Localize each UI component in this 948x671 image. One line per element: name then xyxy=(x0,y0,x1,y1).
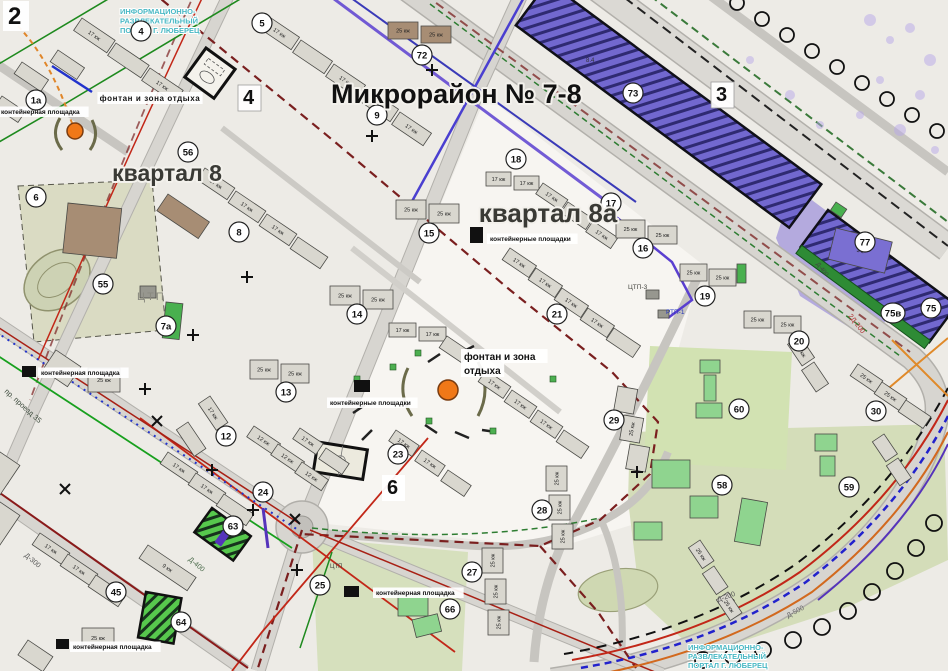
label-group: 8.4 xyxy=(586,58,595,64)
building-storeys-label: 25 кж xyxy=(429,33,443,39)
building: 17 кж xyxy=(419,327,446,341)
building: 17 кж xyxy=(389,323,416,337)
building: 25 кж xyxy=(363,290,393,309)
building-footprint xyxy=(652,460,690,488)
building-footprint xyxy=(646,290,659,299)
label-group: ЦТП xyxy=(330,564,342,570)
building-storeys-label: 25 кж xyxy=(656,233,670,239)
building-storeys-label: 25 кж xyxy=(716,276,730,282)
badge-number: 28 xyxy=(537,505,548,516)
building xyxy=(652,460,690,488)
watermark-text: ИНФОРМАЦИОННО- xyxy=(120,7,196,16)
building xyxy=(704,375,716,401)
badge-number: 5 xyxy=(259,18,265,29)
fountain-quarter-8a xyxy=(438,380,458,400)
badge-number: 9 xyxy=(374,110,379,121)
building: 25 кж xyxy=(680,264,707,281)
building xyxy=(63,203,122,258)
building-storeys-label: 25 кж xyxy=(91,636,105,642)
fountain-quarter-8 xyxy=(67,123,83,139)
building-storeys-label: 17 кж xyxy=(492,177,506,183)
label-group: ЦТП-3 xyxy=(628,284,648,291)
building-number-badge: 13 xyxy=(276,382,296,402)
building: 17 кж xyxy=(486,172,511,186)
watermark-text: РАЗВЛЕКАТЕЛЬНЫЙ xyxy=(120,17,198,26)
badge-number: 13 xyxy=(281,387,292,398)
building-storeys-label: 25 кж xyxy=(624,227,638,233)
badge-number: 59 xyxy=(844,482,855,493)
map-label: контейнерная площадка xyxy=(376,589,455,597)
building-storeys-label: 25 кж xyxy=(555,471,561,485)
label-group: ЦТП xyxy=(137,291,166,303)
district-number: 2 xyxy=(3,1,29,31)
building-storeys-label: 25 кж xyxy=(561,529,567,543)
building-number-badge: 75в xyxy=(881,303,905,323)
building xyxy=(815,434,837,451)
container-pad-icon xyxy=(56,639,69,649)
building-footprint xyxy=(820,456,835,476)
building-storeys-label: 25 кж xyxy=(404,208,418,214)
district-number: 6 xyxy=(382,475,405,501)
map-label: контейнерные площадки xyxy=(330,399,411,407)
badge-number: 4 xyxy=(138,26,144,37)
building-storeys-label: 25 кж xyxy=(751,318,765,324)
building-number-badge: 56 xyxy=(178,142,198,162)
building: 25 кж xyxy=(485,579,506,604)
building-number-badge: 8 xyxy=(229,222,249,242)
building-number-badge: 75 xyxy=(921,298,941,318)
building: 25 кж xyxy=(616,220,645,238)
badge-number: 75в xyxy=(885,308,902,319)
badge-number: 1а xyxy=(31,95,42,106)
badge-number: 45 xyxy=(111,587,122,598)
quarter-8-label: квартал 8 xyxy=(112,160,222,186)
badge-number: 12 xyxy=(221,431,232,442)
building-number-badge: 5 xyxy=(252,13,272,33)
badge-number: 55 xyxy=(98,279,109,290)
building-number-badge: 72 xyxy=(412,45,432,65)
building-number-badge: 45 xyxy=(106,582,126,602)
building: 25 кж xyxy=(774,316,801,333)
site-plan-map: 17 кж17 кж17 кж17 кж17 кж17 кж17 кж17 кж… xyxy=(0,0,948,671)
building-number-badge: 25 xyxy=(310,575,330,595)
building xyxy=(690,496,718,518)
map-label: фонтан и зона отдыха xyxy=(100,94,201,103)
building-number-badge: 28 xyxy=(532,500,552,520)
badge-number: 60 xyxy=(734,404,745,415)
badge-number: 29 xyxy=(609,415,620,426)
building: 25 кж xyxy=(281,364,309,383)
map-title: Микрорайон № 7-8 xyxy=(331,79,582,109)
badge-number: 56 xyxy=(183,147,194,158)
building-number-badge: 30 xyxy=(866,401,886,421)
building: 25 кж xyxy=(648,226,677,244)
building: 25 кж xyxy=(250,360,278,379)
badge-number: 18 xyxy=(511,154,522,165)
building: 25 кж xyxy=(421,26,451,43)
building-number-badge: 19 xyxy=(695,286,715,306)
building-storeys-label: 25 кж xyxy=(396,29,410,35)
building-number-badge: 63 xyxy=(223,516,243,536)
watermark-text: РАЗВЛЕКАТЕЛЬНЫЙ xyxy=(688,652,766,661)
badge-number: 58 xyxy=(717,480,728,491)
building-footprint xyxy=(700,360,720,373)
building-footprint xyxy=(815,434,837,451)
building-number-badge: 59 xyxy=(839,477,859,497)
district-number: 4 xyxy=(238,85,261,111)
building: 17 кж xyxy=(514,176,539,190)
building-storeys-label: 25 кж xyxy=(338,294,352,300)
building xyxy=(737,264,746,283)
building-storeys-label: 25 кж xyxy=(494,584,500,598)
building-storeys-label: 25 кж xyxy=(257,368,271,374)
building: 25 кж xyxy=(546,466,567,491)
district-number-text: 3 xyxy=(716,84,727,106)
building-number-badge: 64 xyxy=(171,612,191,632)
badge-number: 8 xyxy=(236,227,241,238)
building: 25 кж xyxy=(552,524,573,549)
building: 25 кж xyxy=(388,22,418,39)
badge-number: 21 xyxy=(552,309,563,320)
building-footprint xyxy=(634,522,662,540)
building xyxy=(700,360,720,373)
building-number-badge: 21 xyxy=(547,304,567,324)
building-number-badge: 14 xyxy=(347,304,367,324)
building-number-badge: 24 xyxy=(253,482,273,502)
building-number-badge: 23 xyxy=(388,444,408,464)
badge-number: 20 xyxy=(794,336,805,347)
building xyxy=(614,386,638,414)
badge-number: 16 xyxy=(638,243,649,254)
map-label: 8.4 xyxy=(586,58,595,64)
map-label: контейнерная площадка xyxy=(73,643,152,651)
building xyxy=(646,290,659,299)
map-label: контейнерные площадки xyxy=(490,235,571,243)
building-number-badge: 6 xyxy=(26,187,46,207)
building: 25 кж xyxy=(488,610,509,635)
building-number-badge: 77 xyxy=(855,232,875,252)
building-number-badge: 29 xyxy=(604,410,624,430)
building-number-badge: 73 xyxy=(623,83,643,103)
building-number-badge: 1а xyxy=(26,90,46,110)
badge-number: 14 xyxy=(352,309,363,320)
building-number-badge: 7а xyxy=(156,316,176,336)
container-pad-icon xyxy=(344,586,359,597)
map-label: ЦТП xyxy=(330,564,342,570)
building-footprint xyxy=(704,375,716,401)
building: 25 кж xyxy=(330,286,360,305)
badge-number: 15 xyxy=(424,228,435,239)
building-storeys-label: 25 кж xyxy=(371,298,385,304)
building-storeys-label: 25 кж xyxy=(497,615,503,629)
building-storeys-label: 17 кж xyxy=(396,328,410,334)
building-storeys-label: 25 кж xyxy=(781,323,795,329)
badge-number: 66 xyxy=(445,604,456,615)
building-footprint xyxy=(696,403,722,418)
label-group: РТП-1 xyxy=(666,309,685,316)
map-label: ЦТП xyxy=(137,291,166,303)
building-storeys-label: 17 кж xyxy=(426,332,440,338)
container-pad-icon xyxy=(22,366,36,377)
map-label: РТП-1 xyxy=(666,309,685,316)
district-number-text: 6 xyxy=(387,477,398,499)
building-number-badge: 18 xyxy=(506,149,526,169)
building-footprint xyxy=(63,203,122,258)
badge-number: 24 xyxy=(258,487,269,498)
badge-number: 72 xyxy=(417,50,428,61)
badge-number: 77 xyxy=(860,237,871,248)
watermark-text: ПОРТАЛ Г. ЛЮБЕРЕЦ xyxy=(688,661,768,670)
building-number-badge: 4 xyxy=(131,21,151,41)
label-group: фонтан и зона xyxy=(461,349,548,363)
building xyxy=(634,522,662,540)
building-number-badge: 27 xyxy=(462,562,482,582)
container-pad-icon xyxy=(470,227,483,243)
building-number-badge: 20 xyxy=(789,331,809,351)
map-label: ЦТП-3 xyxy=(628,284,648,291)
building: 25 кж xyxy=(482,548,503,573)
map-label: отдыха xyxy=(464,366,501,377)
building: 25 кж xyxy=(396,200,426,219)
building xyxy=(820,456,835,476)
building-storeys-label: 25 кж xyxy=(491,553,497,567)
badge-number: 64 xyxy=(176,617,187,628)
district-number-text: 2 xyxy=(8,3,21,30)
building: 25 кж xyxy=(709,269,736,286)
building-storeys-label: 25 кж xyxy=(687,271,701,277)
badge-number: 6 xyxy=(33,192,38,203)
label-group: фонтан и зона отдыха xyxy=(97,92,202,104)
badge-number: 75 xyxy=(926,303,937,314)
building-number-badge: 66 xyxy=(440,599,460,619)
badge-number: 27 xyxy=(467,567,478,578)
district-number: 3 xyxy=(711,82,734,108)
building-footprint xyxy=(690,496,718,518)
building-storeys-label: 25 кж xyxy=(558,500,564,514)
building-storeys-label: 25 кж xyxy=(437,212,451,218)
badge-number: 19 xyxy=(700,291,711,302)
badge-number: 63 xyxy=(228,521,239,532)
building-storeys-label: 25 кж xyxy=(288,372,302,378)
badge-number: 7а xyxy=(161,321,172,332)
district-number-text: 4 xyxy=(243,87,255,109)
building-number-badge: 58 xyxy=(712,475,732,495)
building-number-badge: 12 xyxy=(216,426,236,446)
building-storeys-label: 17 кж xyxy=(520,181,534,187)
building: 25 кж xyxy=(429,204,459,223)
building xyxy=(696,403,722,418)
building-footprint xyxy=(614,386,638,414)
building-number-badge: 60 xyxy=(729,399,749,419)
building-number-badge: 55 xyxy=(93,274,113,294)
quarter-8a-label: квартал 8а xyxy=(479,198,618,228)
badge-number: 30 xyxy=(871,406,882,417)
map-label: фонтан и зона xyxy=(464,351,536,363)
container-pad-icon xyxy=(354,380,370,392)
watermark-text: ИНФОРМАЦИОННО- xyxy=(688,643,764,652)
label-group: отдыха xyxy=(461,363,504,377)
building: 25 кж xyxy=(744,311,771,328)
map-canvas: 17 кж17 кж17 кж17 кж17 кж17 кж17 кж17 кж… xyxy=(0,0,948,671)
badge-number: 25 xyxy=(315,580,326,591)
building-number-badge: 16 xyxy=(633,238,653,258)
badge-number: 23 xyxy=(393,449,404,460)
building-number-badge: 15 xyxy=(419,223,439,243)
building-storeys-label: 25 кж xyxy=(97,378,111,384)
building-footprint xyxy=(737,264,746,283)
badge-number: 73 xyxy=(628,88,639,99)
map-label: контейнерная площадка xyxy=(41,369,120,377)
label-group: контейнерная площадка xyxy=(0,107,89,118)
